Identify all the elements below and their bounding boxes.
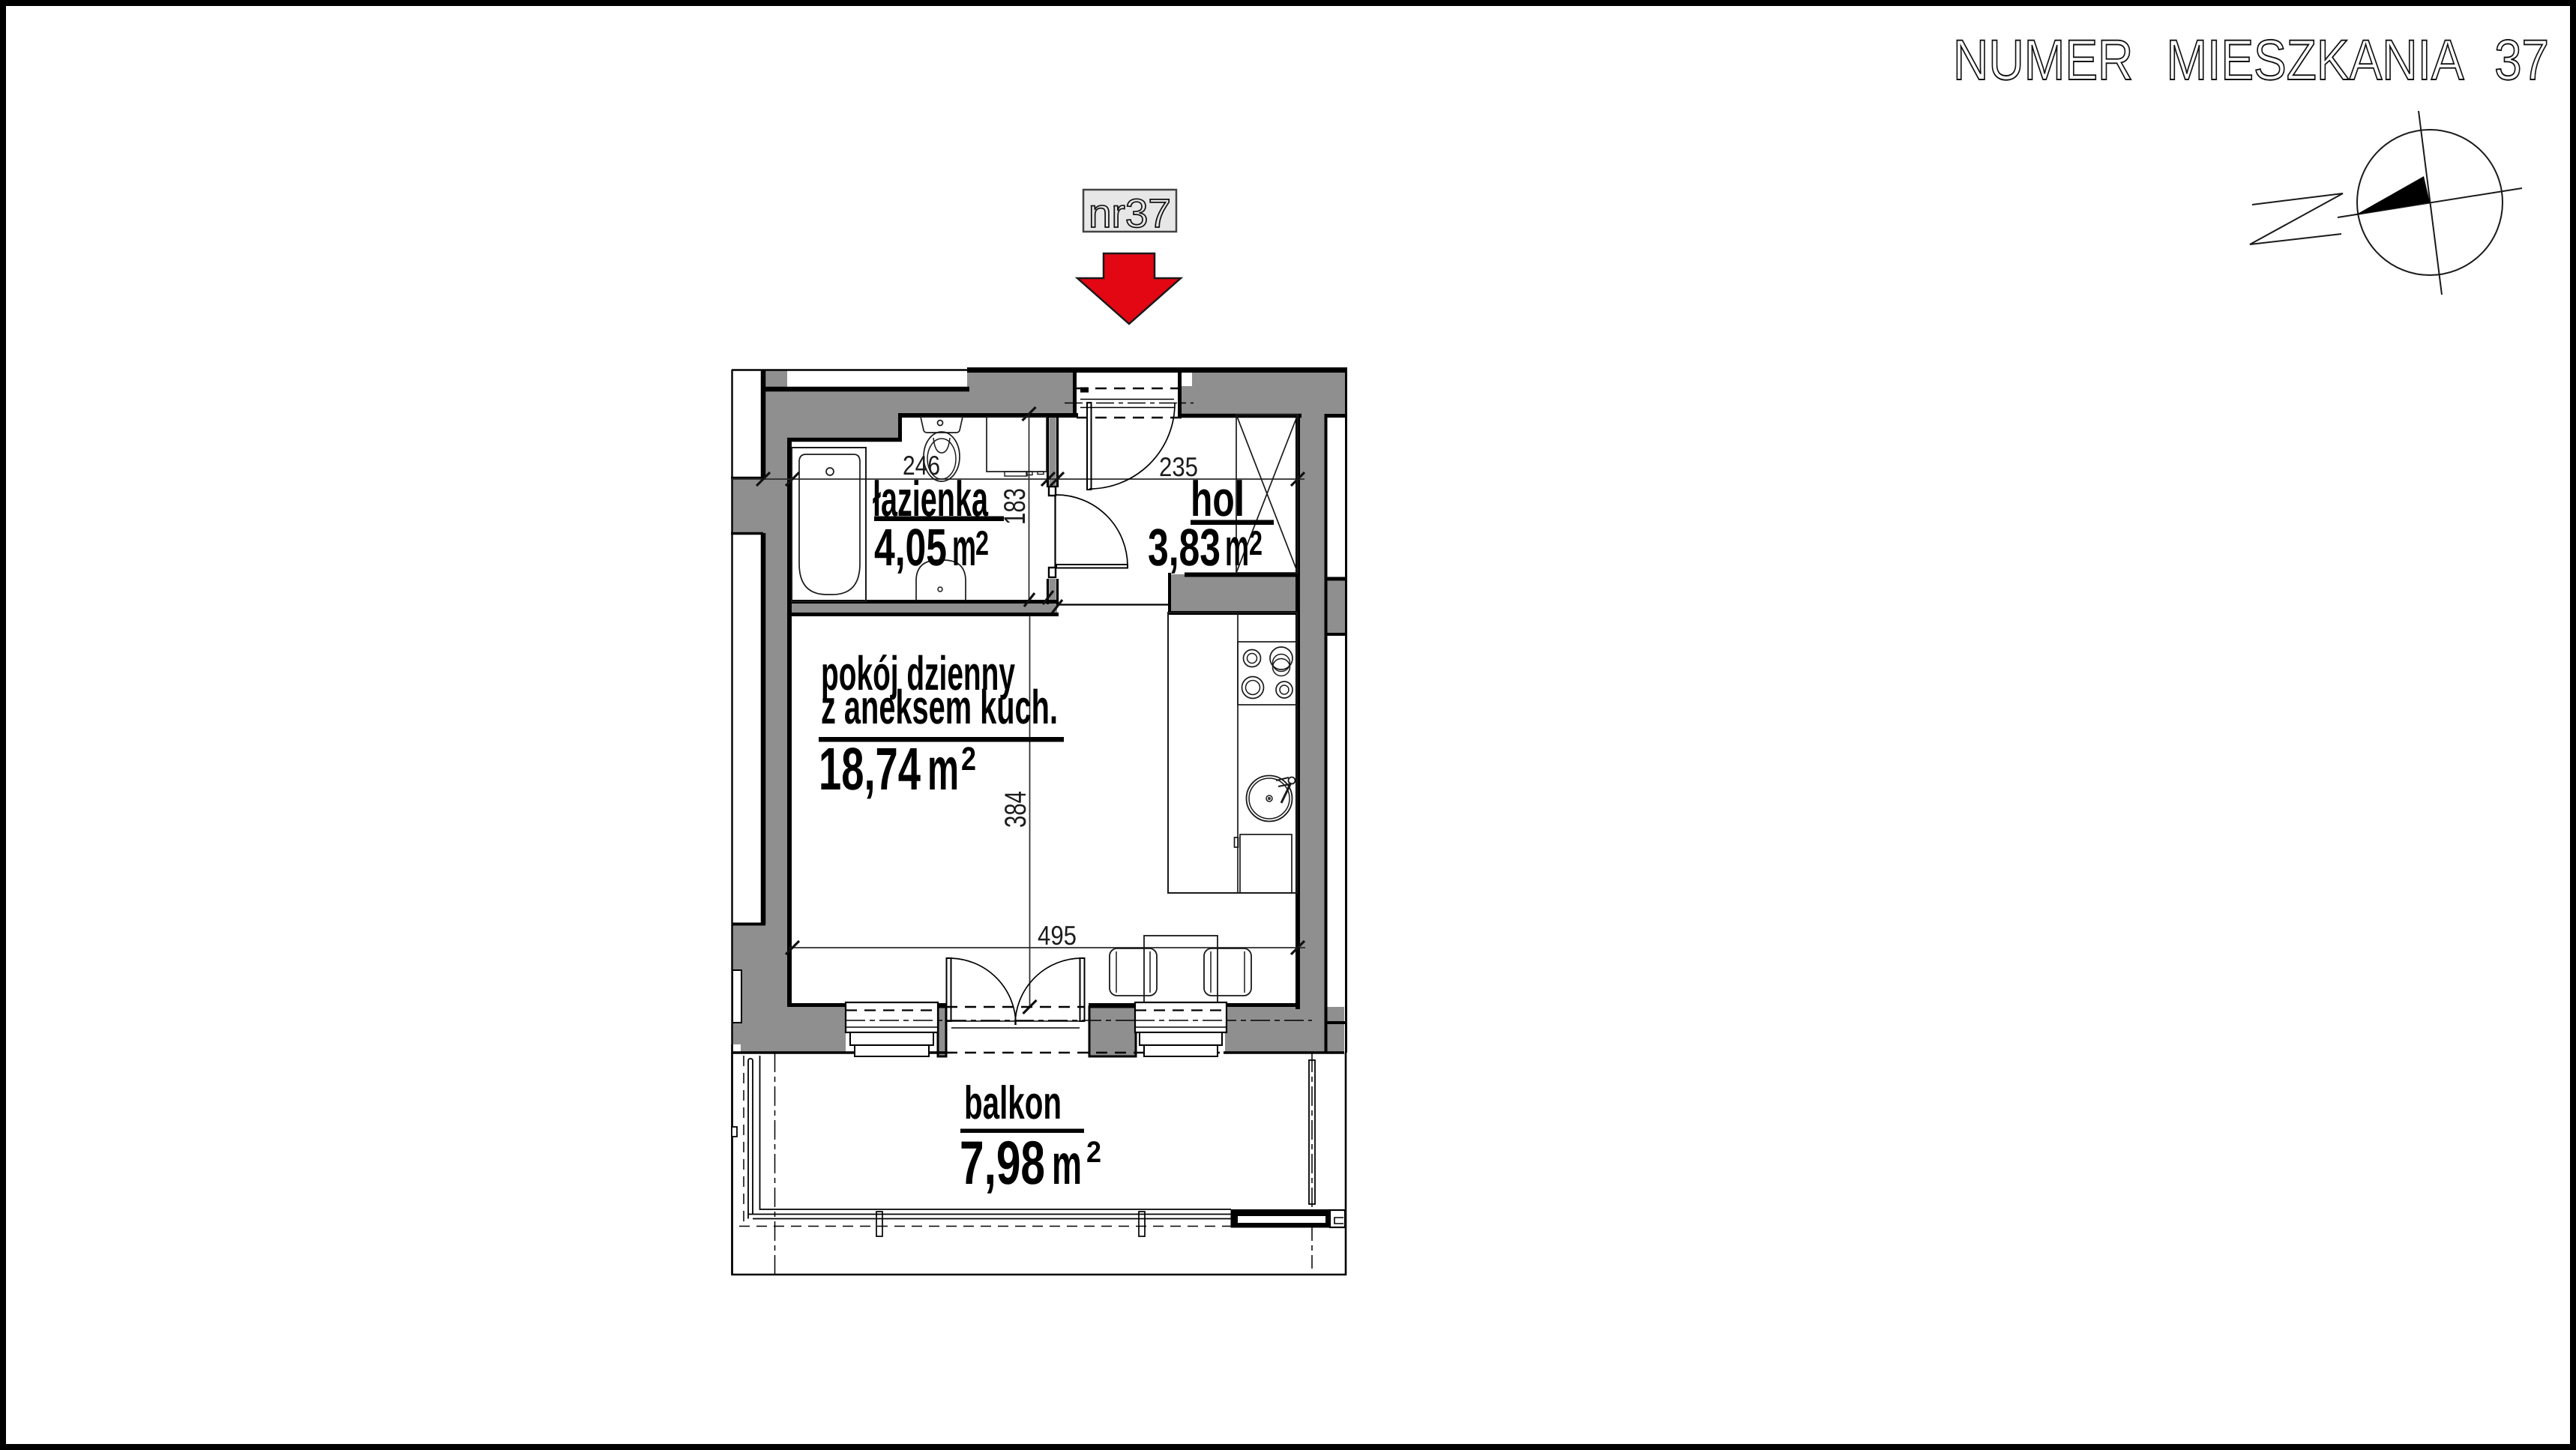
svg-text:495: 495 bbox=[1038, 920, 1077, 951]
svg-text:18,74: 18,74 bbox=[819, 735, 921, 802]
svg-text:m: m bbox=[1052, 1133, 1082, 1197]
svg-text:m: m bbox=[927, 735, 959, 802]
svg-text:2: 2 bbox=[1249, 523, 1263, 562]
svg-text:nr37: nr37 bbox=[1089, 191, 1171, 236]
svg-text:2: 2 bbox=[961, 741, 976, 777]
svg-text:4,05: 4,05 bbox=[874, 518, 947, 577]
svg-text:2: 2 bbox=[975, 523, 989, 562]
svg-text:3,83: 3,83 bbox=[1148, 518, 1221, 577]
svg-text:2: 2 bbox=[1086, 1136, 1101, 1169]
svg-text:m: m bbox=[1225, 518, 1249, 577]
svg-text:z aneksem kuch.: z aneksem kuch. bbox=[821, 680, 1058, 734]
svg-text:m: m bbox=[952, 518, 976, 577]
svg-text:balkon: balkon bbox=[964, 1077, 1062, 1129]
svg-text:384: 384 bbox=[999, 791, 1032, 828]
svg-text:NUMER MIESZKANIA 37: NUMER MIESZKANIA 37 bbox=[1953, 28, 2549, 92]
svg-text:7,98: 7,98 bbox=[960, 1129, 1045, 1197]
